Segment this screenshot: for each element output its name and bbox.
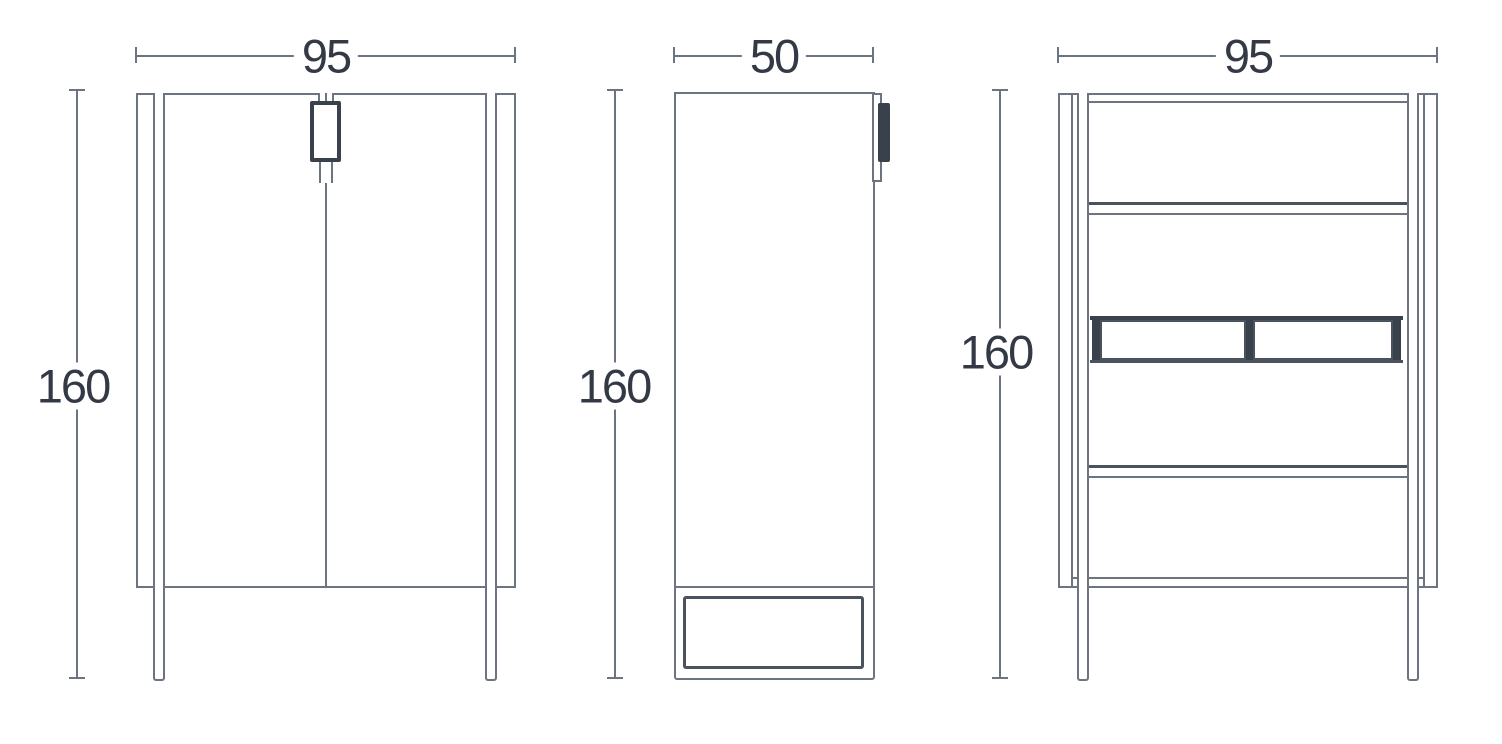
dimension-tick-left: [1057, 47, 1059, 63]
door-gap-line: [325, 181, 327, 588]
dimension-tick-left: [135, 47, 137, 63]
handle-grip: [878, 103, 890, 162]
shelf-underside-line: [1088, 476, 1408, 478]
dimension-cap-top: [607, 89, 623, 91]
left-side-panel-line: [1071, 93, 1073, 588]
dimension-cap-bottom: [607, 677, 623, 679]
shelf-front-edge: [1088, 465, 1408, 468]
dimension-tick-left: [673, 47, 675, 63]
bottom-shelf-line: [1072, 577, 1424, 579]
dimension-cap-bottom: [992, 677, 1008, 679]
dimension-label-width: 95: [294, 33, 358, 80]
side-cabinet-body: [674, 92, 875, 680]
dimension-label-height: 160: [570, 363, 658, 410]
drawer-end-cap-left: [1092, 320, 1100, 360]
dimension-label-height: 160: [952, 329, 1040, 376]
drawer-front-left: [1100, 320, 1246, 360]
top-rail-line: [1088, 101, 1408, 103]
drawer-end-cap-right: [1393, 320, 1401, 360]
shelf-front-edge: [1088, 202, 1408, 205]
dimension-line: [999, 90, 1001, 679]
shelf-underside-line: [1088, 213, 1408, 215]
back-left-leg: [1077, 93, 1089, 681]
side-base-panel: [683, 596, 864, 669]
right-side-panel-line: [1423, 93, 1425, 588]
dimension-label-width: 95: [1216, 33, 1280, 80]
side-base-top-line: [674, 586, 875, 588]
back-right-leg: [1407, 93, 1419, 681]
front-left-leg: [153, 93, 165, 681]
dimension-cap-top: [992, 89, 1008, 91]
drawer-band: [1090, 316, 1403, 363]
handle-lower-stem: [319, 161, 333, 183]
handle-body: [310, 101, 341, 162]
dimension-label-width: 50: [742, 33, 806, 80]
dimension-tick-right: [514, 47, 516, 63]
dimension-cap-top: [69, 89, 85, 91]
drawer-divider: [1246, 320, 1253, 360]
dimension-tick-right: [872, 47, 874, 63]
dimension-cap-bottom: [69, 677, 85, 679]
dimension-tick-right: [1436, 47, 1438, 63]
front-right-leg: [485, 93, 497, 681]
technical-drawing-canvas: 95 160 50: [0, 0, 1502, 744]
drawer-front-right: [1253, 320, 1393, 360]
dimension-label-height: 160: [29, 363, 117, 410]
drawer-band-bottom-edge: [1090, 360, 1403, 363]
